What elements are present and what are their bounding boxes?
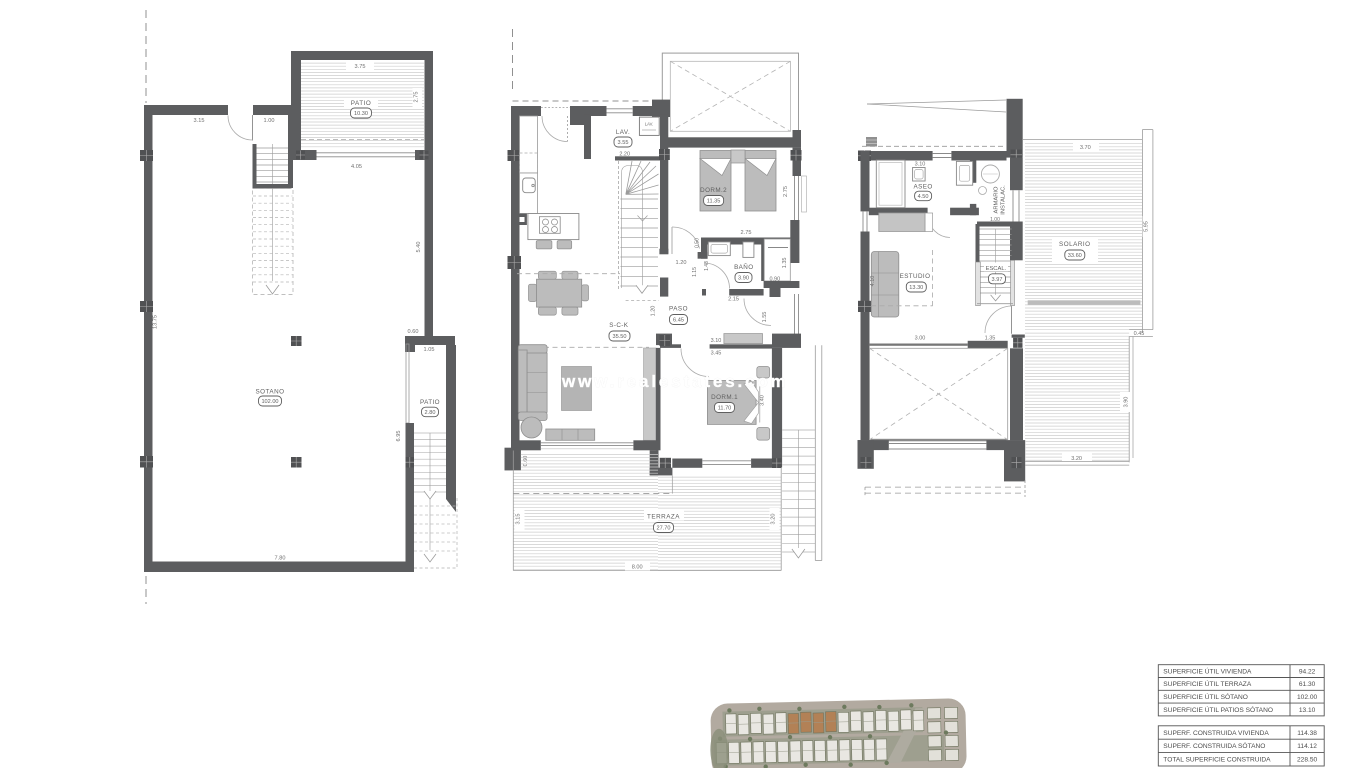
svg-text:SUPERFICIE ÚTIL VIVIENDA: SUPERFICIE ÚTIL VIVIENDA (1163, 666, 1252, 675)
svg-text:10.30: 10.30 (354, 111, 368, 117)
svg-text:102.00: 102.00 (1297, 694, 1318, 701)
svg-text:1.55: 1.55 (762, 312, 768, 323)
svg-text:ESCAL.: ESCAL. (986, 266, 1007, 272)
svg-text:ESTUDIO: ESTUDIO (900, 273, 931, 280)
svg-text:3.10: 3.10 (711, 338, 722, 344)
svg-text:7.80: 7.80 (275, 556, 286, 562)
svg-text:LAV.: LAV. (645, 122, 653, 127)
svg-text:LAV.: LAV. (616, 129, 630, 136)
svg-text:33.60: 33.60 (1068, 253, 1082, 259)
svg-text:3.70: 3.70 (1080, 145, 1091, 151)
svg-text:102.00: 102.00 (261, 399, 278, 405)
svg-text:PASO: PASO (669, 306, 688, 313)
svg-text:DORM.1: DORM.1 (711, 394, 738, 401)
svg-text:13.75: 13.75 (153, 315, 159, 329)
svg-text:0.90: 0.90 (769, 277, 780, 283)
svg-text:6.95: 6.95 (396, 431, 402, 442)
svg-text:13.30: 13.30 (909, 285, 923, 291)
svg-text:5.40: 5.40 (416, 242, 422, 253)
svg-text:6.45: 6.45 (673, 318, 684, 324)
svg-text:0.50: 0.50 (695, 238, 701, 248)
svg-text:11.35: 11.35 (707, 199, 721, 205)
svg-text:4.05: 4.05 (351, 164, 362, 170)
svg-text:SUPERF. CONSTRUIDA SÓTANO: SUPERF. CONSTRUIDA SÓTANO (1163, 741, 1265, 750)
svg-text:1.48: 1.48 (704, 261, 710, 271)
svg-text:2.75: 2.75 (783, 186, 789, 197)
svg-text:1.35: 1.35 (782, 258, 788, 269)
svg-text:TOTAL SUPERFICIE CONSTRUIDA: TOTAL SUPERFICIE CONSTRUIDA (1163, 757, 1271, 764)
svg-text:61.30: 61.30 (1299, 681, 1316, 688)
svg-text:SUPERFICIE ÚTIL PATIOS SÓTANO: SUPERFICIE ÚTIL PATIOS SÓTANO (1163, 705, 1273, 714)
svg-text:3.55: 3.55 (618, 140, 629, 146)
svg-text:PATIO: PATIO (420, 399, 440, 406)
svg-text:INSTALAC.: INSTALAC. (1001, 185, 1007, 215)
svg-text:2.15: 2.15 (728, 297, 739, 303)
svg-text:3.90: 3.90 (738, 276, 749, 282)
svg-text:1.15: 1.15 (692, 267, 698, 277)
svg-text:27.70: 27.70 (657, 526, 671, 532)
svg-text:SOTANO: SOTANO (255, 389, 284, 396)
svg-text:8.00: 8.00 (632, 565, 643, 571)
svg-text:www.realestates.com: www.realestates.com (561, 372, 788, 391)
svg-text:3.20: 3.20 (771, 514, 777, 525)
svg-text:3.45: 3.45 (711, 351, 722, 357)
svg-text:94.22: 94.22 (1299, 668, 1316, 675)
svg-text:5.95: 5.95 (1144, 221, 1150, 232)
svg-text:3.00: 3.00 (915, 335, 926, 341)
svg-text:SOLARIO: SOLARIO (1059, 241, 1091, 248)
svg-text:0.60: 0.60 (408, 329, 419, 335)
svg-text:2.75: 2.75 (414, 92, 420, 103)
svg-text:SUPERFICIE ÚTIL TERRAZA: SUPERFICIE ÚTIL TERRAZA (1163, 679, 1252, 688)
svg-text:1.35: 1.35 (985, 335, 996, 341)
svg-text:3.75: 3.75 (355, 64, 366, 70)
svg-text:3.15: 3.15 (194, 118, 205, 124)
svg-text:1.05: 1.05 (424, 347, 435, 353)
svg-text:DORM.2: DORM.2 (700, 187, 727, 194)
svg-text:PATIO: PATIO (351, 100, 371, 107)
svg-text:3.97: 3.97 (992, 277, 1003, 283)
svg-text:1.00: 1.00 (264, 118, 275, 124)
svg-text:3.10: 3.10 (915, 162, 926, 168)
svg-text:SUPERF. CONSTRUIDA VIVIENDA: SUPERF. CONSTRUIDA VIVIENDA (1163, 730, 1269, 737)
svg-text:3.90: 3.90 (1123, 397, 1129, 408)
svg-text:BAÑO: BAÑO (734, 262, 753, 271)
svg-text:2.75: 2.75 (741, 230, 752, 236)
svg-text:35.50: 35.50 (613, 334, 627, 340)
svg-text:SUPERFICIE ÚTIL SÓTANO: SUPERFICIE ÚTIL SÓTANO (1163, 692, 1248, 701)
svg-text:ARMARIO: ARMARIO (994, 186, 1000, 214)
svg-text:TERRAZA: TERRAZA (647, 514, 680, 521)
svg-text:3.15: 3.15 (516, 514, 522, 525)
svg-text:ASEO: ASEO (914, 184, 933, 191)
svg-text:1.20: 1.20 (676, 260, 687, 266)
svg-text:228.50: 228.50 (1297, 757, 1318, 764)
svg-text:4.50: 4.50 (918, 194, 929, 200)
svg-text:0.45: 0.45 (1134, 331, 1145, 337)
svg-text:1.20: 1.20 (651, 306, 657, 317)
svg-text:114.38: 114.38 (1297, 730, 1317, 737)
svg-text:114.12: 114.12 (1297, 743, 1317, 750)
svg-text:11.70: 11.70 (718, 406, 732, 412)
svg-text:S-C-K: S-C-K (609, 322, 629, 329)
svg-text:3.20: 3.20 (1071, 456, 1082, 462)
svg-text:3.40: 3.40 (760, 395, 766, 406)
svg-text:13.10: 13.10 (1299, 707, 1316, 714)
svg-text:2.20: 2.20 (619, 151, 630, 157)
svg-text:2.80: 2.80 (425, 410, 436, 416)
svg-text:4.10: 4.10 (870, 276, 876, 287)
